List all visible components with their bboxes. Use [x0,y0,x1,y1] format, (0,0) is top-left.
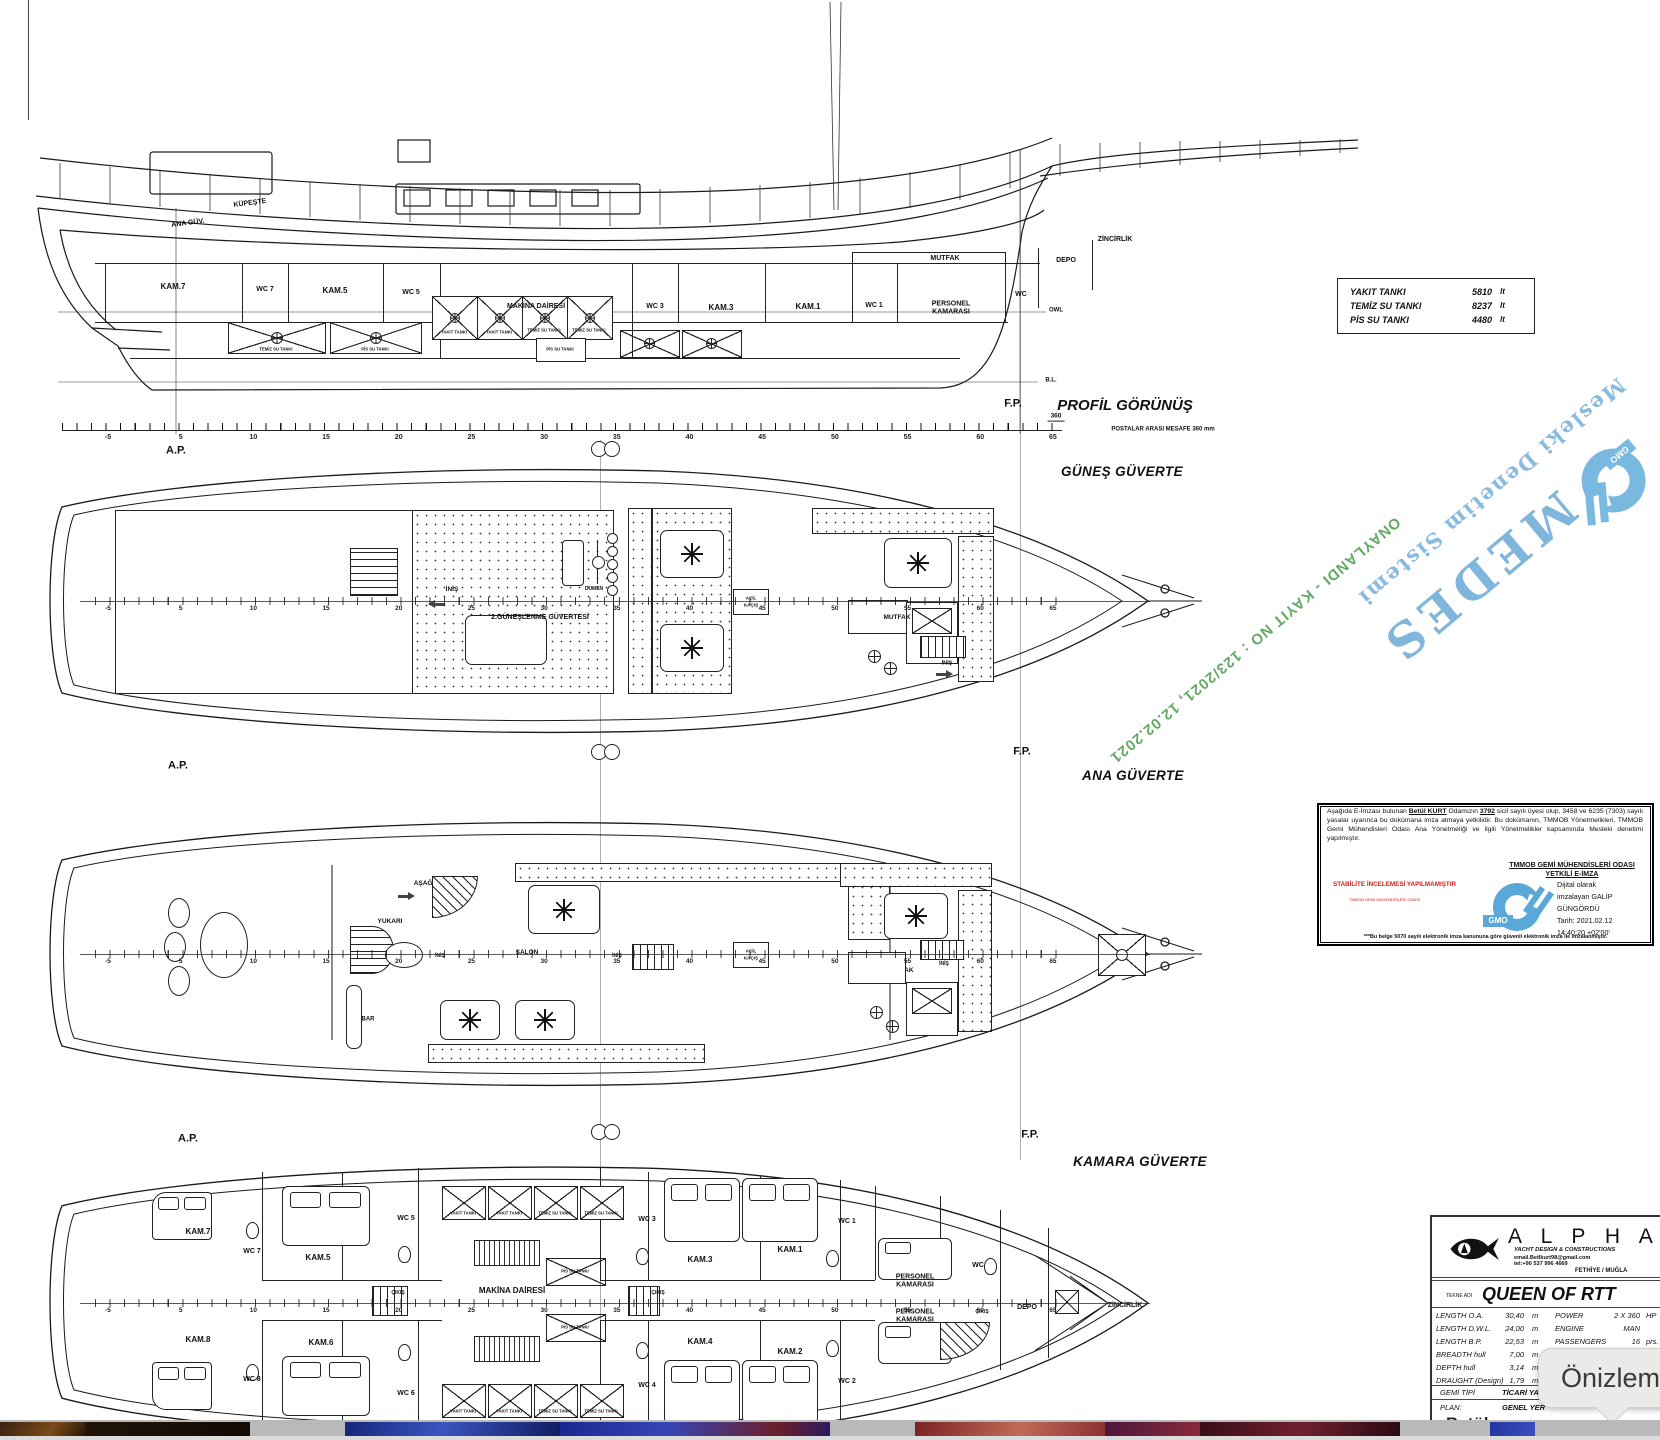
room-label: KAM.6 [309,1338,334,1348]
valve-symbol [540,313,550,323]
salon-table [515,1000,575,1040]
room-label: KAM.3 [688,1255,713,1265]
valve-symbol [644,338,655,349]
sunbathing-label: 2.GÜNEŞLENME GÜVERTESİ [491,614,589,622]
room-label: KAM.7 [186,1227,211,1237]
tank-label: YAKIT TANKI [491,1408,527,1413]
bulkhead [1005,252,1006,322]
tank-label: PİS SU TANKI [361,346,388,351]
table-star [679,541,705,567]
tank-row-value: 8237 [1456,299,1492,313]
tank-label: YAKIT TANKI [445,1408,481,1413]
tank-row-label: TEMİZ SU TANKI [1350,299,1421,313]
tank-row-value: 4480 [1456,313,1492,327]
bulkhead [852,252,853,322]
spec-key: PASSENGERS [1555,1337,1606,1346]
room-label: WC [1015,291,1027,299]
tank-label: TEMİZ SU TANKI [571,327,607,332]
gmo-watermark-logo: GMO [1549,421,1660,539]
room-label: KAM.5 [323,286,348,296]
tank-row-label: YAKIT TANKI [1350,285,1421,299]
bulkhead [1000,1210,1001,1370]
spec-value: 30,40 [1492,1311,1524,1320]
taskbar-lower-bar [0,1436,1660,1440]
spec-value: 7,00 [1492,1350,1524,1359]
exit-label: ÇIKIŞ [651,1290,664,1296]
bowsprit [1040,148,1358,176]
stairs [350,548,398,596]
spec-value: 1,79 [1492,1376,1524,1385]
watermark-medes: MEDES [1369,479,1587,675]
bulkhead [105,263,106,322]
room-label: WC 5 [397,1215,415,1223]
bulkhead [1038,248,1039,308]
spec-unit: m [1532,1350,1538,1359]
room-label: KAM.5 [306,1253,331,1263]
cushion-area [515,863,892,882]
bed [152,1362,212,1410]
view-title-profile: PROFİL GÖRÜNÜŞ [1057,397,1193,415]
brand-name: A L P H A [1508,1225,1660,1249]
room-label: KAM.7 [161,282,186,292]
tank-label: YAKIT TANKI [481,329,517,334]
room-label: WC 8 [243,1376,261,1384]
spec-key: LENGTH D.W.L. [1436,1324,1491,1333]
spec-key: BREADTH hull [1436,1350,1486,1359]
bulkhead [678,263,679,322]
bed [742,1360,818,1424]
ap-mark: A.P. [178,1132,198,1145]
frame-numbers: -55101520253035404550556065 [97,958,1064,965]
image-thumbnail[interactable] [1105,1422,1200,1436]
centerline-symbol [604,441,620,457]
profile-hull-drawing [0,0,1400,460]
image-thumbnail[interactable] [85,1422,250,1436]
room-label: WC 4 [638,1382,656,1390]
tank-label: TEMİZ SU TANKI [259,346,292,351]
tank-row-label: PİS SU TANKI [1350,313,1421,327]
stability-note: STABİLİTE İNCELEMESİ YAPILMAMIŞTIR [1333,881,1456,888]
tank-label: TEMİZ SU TANKI [537,1408,573,1413]
spec-value: MAN [1600,1324,1640,1333]
toilet [636,1248,649,1265]
preview-tooltip: Önizlem [1538,1348,1660,1408]
tank-row-unit: lt [1500,285,1505,299]
tank-label: YAKIT TANKI [491,1210,527,1215]
spec-value: 2 X 360 [1600,1311,1640,1320]
salon-table [528,885,600,934]
room-label: WC 5 [402,289,420,297]
corridor-line [262,1320,442,1321]
toilet [246,1222,259,1239]
toilet [984,1258,997,1275]
taskbar-thumbnail-strip [0,1420,1660,1440]
galley-appliance [912,988,952,1014]
corridor-line [262,1280,442,1281]
table-star [905,550,931,576]
corridor-line [600,1280,875,1281]
centerline-symbol [604,1124,620,1140]
exit-label: ÇIKIŞ [391,1290,404,1296]
engineer-name: Betül KURT [1409,808,1447,815]
bulkhead [242,263,243,322]
gmo-stamp-logo: GMO [1489,881,1549,941]
chamber-subtitle: YETKİLİ E-İMZA [1497,871,1647,878]
helm-console [562,540,584,586]
fp-mark: F.P. [1004,397,1022,410]
drawing-sheet: YAKIT TANKI YAKIT TANKI TEMİZ SU TANKI T… [0,0,1660,1440]
sink [868,650,881,663]
room-label: WC 6 [397,1390,415,1398]
room-label: WC [972,1262,984,1270]
bulkhead [1092,240,1093,290]
boat-name: QUEEN OF RTT [1482,1284,1616,1305]
cushion-area [840,863,992,887]
engine [474,1240,540,1266]
frame-ruler [95,597,1065,605]
image-thumbnail[interactable] [915,1422,1105,1436]
room-label: WC 1 [865,302,883,310]
room-label: KAM.4 [688,1337,713,1347]
tank-row-value: 5810 [1456,285,1492,299]
valve-symbol [706,338,717,349]
frame-spacing-value: 360 [1048,413,1065,422]
porthole [607,585,618,596]
bulkhead [262,1320,263,1428]
bulkhead [840,1180,841,1280]
porthole [607,533,618,544]
room-label: KAM.2 [778,1347,803,1357]
fp-mark: F.P. [1021,1128,1039,1141]
room-label: PERSONEL KAMARASI [915,301,987,318]
tank-label: TEMİZ SU TANKI [526,327,562,332]
toilet [826,1250,839,1267]
spec-unit: prs. [1646,1337,1659,1346]
deck-line [95,263,1040,264]
spec-value: 3,14 [1492,1363,1524,1372]
ap-mark: A.P. [168,759,188,772]
deck-line [60,210,1044,250]
frame-ruler [95,1299,1065,1307]
stern-table [200,912,248,978]
plan-value: GENEL YER [1502,1403,1545,1412]
bulkhead [897,263,898,322]
cushion-area [812,508,994,534]
tank-row-unit: lt [1500,313,1505,327]
frame-numbers: -55101520253035404550556065 [97,1307,1064,1314]
centerline-symbol [604,744,620,760]
bulkhead [383,263,384,322]
sink [870,1006,883,1019]
approval-stamp: Aşağıda E-İmzası bulunan Betül KURT Odam… [1317,803,1654,946]
chamber-note-small: TMMOB GEMİ MÜHENDİSLERİ ODASI [1349,897,1420,902]
room-label: KAM.1 [778,1245,803,1255]
tank-label: YAKIT TANKI [436,329,472,334]
brand-tagline: YACHT DESIGN & CONSTRUCTIONS [1514,1247,1615,1253]
image-thumbnail[interactable] [1200,1422,1400,1436]
porthole [607,559,618,570]
salon-table [440,1000,500,1040]
ruler-baseline [62,430,1062,431]
vessel-type-value: TİCARİ YAT [1502,1388,1543,1397]
brand-city: FETHİYE / MUĞLA [1575,1268,1627,1274]
room-label: WC 3 [638,1216,656,1224]
digital-signature-text: Dijital olarakimzalayan GALİPGÜNGÖRDÜ Ta… [1557,879,1613,939]
windlass-drum [1116,949,1128,961]
sink [884,662,897,675]
bulkhead [765,263,766,322]
room-label: WC 1 [838,1218,856,1226]
room-label: MUTFAK [930,255,959,263]
toilet [636,1342,649,1359]
room-label: KAM.1 [796,302,821,312]
spec-unit: HP [1646,1311,1656,1320]
deck-table [660,624,724,672]
room-label: ZİNCİRLİK [1098,236,1133,244]
deck-table [884,538,952,588]
table-star [551,897,577,923]
porthole [607,572,618,583]
room-label: PERSONEL KAMARASI [883,1274,947,1291]
fp-mark: F.P. [1013,745,1031,758]
bulkhead [840,1320,841,1420]
bulkhead [288,263,289,322]
room-label: MAKİNA DAİRESİ [507,303,565,311]
tank-label: TEMİZ SU TANKI [583,1210,619,1215]
bed [282,1186,370,1246]
bulkhead [1048,1228,1049,1358]
bulkhead [648,1172,649,1280]
stairs-label: İNİŞ [446,586,459,594]
stairs-label: İNİŞ [942,661,953,668]
valve-symbol [585,313,595,323]
deck-table [465,615,547,665]
bulkhead [648,1320,649,1428]
view-title-sun-deck: GÜNEŞ GÜVERTE [1061,464,1183,480]
engine [474,1336,540,1362]
image-thumbnail[interactable] [345,1422,560,1436]
table-star [903,903,929,929]
exit-arrow [936,670,953,679]
spec-key: POWER [1555,1311,1583,1320]
image-thumbnail[interactable] [0,1422,85,1436]
brand-phone: tel:+90 537 996 4669 [1514,1261,1568,1267]
image-thumbnail[interactable] [1490,1422,1535,1436]
spec-key: LENGTH B.P. [1436,1337,1482,1346]
stairs [920,636,966,658]
stamp-paragraph: Aşağıda E-İmzası bulunan Betül KURT Odam… [1327,808,1643,844]
bar-label: BAR [362,1016,375,1023]
tank-label: PİS SU TANKI [560,1324,590,1329]
cap-rail [36,140,1358,228]
tank-row-unit: lt [1500,299,1505,313]
helm-wheel [592,556,605,569]
spec-key: LENGTH O.A. [1436,1311,1484,1320]
deck-table [884,893,948,939]
room-label: DEPO [1056,257,1076,265]
bed [664,1360,740,1424]
table-star [532,1007,558,1033]
tank-label: PİS SU TANKI [543,346,577,351]
spec-key: ENGINE [1555,1324,1584,1333]
helm-label: DÜMEN [585,586,603,592]
chamber-title: TMMOB GEMİ MÜHENDİSLERİ ODASI [1497,862,1647,869]
frame-ruler [95,950,1065,958]
bar-counter [346,985,362,1049]
valve-symbol [370,332,382,344]
bulkhead [262,1172,263,1280]
galley-label: MUTFAK [883,614,910,622]
plan-label: PLAN: [1440,1403,1462,1412]
cushion-area [428,1044,705,1063]
bed [282,1356,370,1416]
alpha-fish-logo [1446,1231,1502,1267]
spec-unit: m [1532,1337,1538,1346]
stairs-label: YUKARI [378,918,403,926]
spec-value: 24,00 [1492,1324,1524,1333]
spec-value: 16 [1600,1337,1640,1346]
tank-label: YAKIT TANKI [445,1210,481,1215]
toilet [398,1344,411,1361]
bed [664,1178,740,1242]
room-label: KAM.3 [709,303,734,313]
tank-capacity-table: YAKIT TANKI TEMİZ SU TANKI PİS SU TANKI … [1337,278,1535,334]
tank-label: TEMİZ SU TANKI [537,1210,573,1215]
porthole [607,546,618,557]
tooltip-text: Önizlem [1561,1363,1660,1394]
bulkhead [418,1320,419,1432]
valve-symbol [450,313,460,323]
frame-spacing-note: POSTALAR ARASI MESAFE 360 mm [1111,426,1214,433]
sink [886,1020,899,1033]
spec-value: 22,53 [1492,1337,1524,1346]
room-label: WC 2 [838,1378,856,1386]
deck-table [660,530,724,578]
bed [742,1178,818,1242]
registry-number: 3792 [1480,808,1495,815]
frame-numbers: -55101520253035404550556065 [97,605,1064,612]
baseline-label: B.L. [1045,377,1056,384]
room-label: KAM.8 [186,1335,211,1345]
tank-label: PİS SU TANKI [560,1268,590,1273]
tank-label: TEMİZ SU TANKI [583,1408,619,1413]
stern-seat [168,898,190,928]
table-star [679,635,705,661]
down-arrow [398,892,415,901]
frame-numbers: -55101520253035404550556065 [97,434,1064,441]
valve-symbol [495,313,505,323]
spec-key: DEPTH hull [1436,1363,1475,1372]
transom-inner [60,230,116,330]
vessel-type-label: GEMİ TİPİ [1440,1388,1475,1397]
toilet [826,1340,839,1357]
valve-symbol [271,332,283,344]
owl-label: OWL [1049,307,1063,314]
deck-line [852,252,1005,253]
boat-name-label: TEKNE ADI [1446,1293,1472,1299]
table-star [457,1007,483,1033]
stern-seat [168,966,190,996]
toilet [398,1246,411,1263]
room-label: WC 3 [646,303,664,311]
corridor-line [600,1320,875,1321]
bulkhead [875,1186,876,1280]
view-title-main-deck: ANA GÜVERTE [1082,768,1184,784]
bulkhead [418,1168,419,1280]
image-thumbnail[interactable] [560,1422,830,1436]
room-label: WC 7 [256,286,274,294]
spec-unit: m [1532,1311,1538,1320]
room-label: WC 7 [243,1248,261,1256]
room-label: MAKİNA DAİRESİ [479,1286,545,1296]
stamp-footnote: ***Bu belge 5070 sayılı elektronik imza … [1323,934,1648,940]
spec-unit: m [1532,1324,1538,1333]
